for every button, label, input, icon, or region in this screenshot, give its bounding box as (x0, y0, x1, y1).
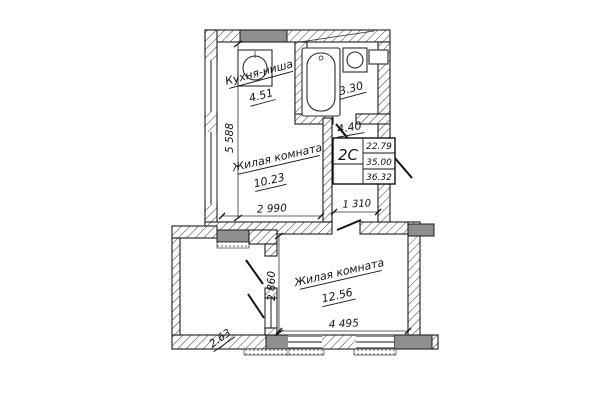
dim-label-2860: 2 860 (266, 271, 278, 301)
window-left-upper (204, 60, 218, 112)
svg-text:10.23: 10.23 (252, 171, 286, 191)
dim-label-1310: 1 310 (342, 198, 371, 210)
wall-bathroom-bottom-right (356, 114, 390, 124)
bathtub-icon (302, 48, 340, 116)
wall-top (205, 30, 390, 42)
vent-shaft-bottom-right (394, 335, 432, 349)
fixtures (238, 48, 388, 116)
svg-text:12.56: 12.56 (320, 286, 354, 306)
wall-balcony-top (172, 226, 217, 238)
stamp-apartment-type: 2С (338, 146, 359, 164)
dimension-4495: 4 495 (276, 317, 411, 334)
wall-lower-right (408, 222, 420, 347)
balcony-door-leaf (246, 260, 263, 284)
window-left-lower (204, 132, 218, 204)
floor-plan-canvas: 5 588 2 990 1 310 2 860 (0, 0, 600, 400)
window-sill (244, 349, 288, 355)
kitchen-area: 4.51 (247, 86, 276, 106)
dim-label-2990: 2 990 (257, 202, 288, 216)
washing-machine-icon (343, 48, 367, 72)
hallway-area: 4.40 (334, 119, 364, 138)
wall-step (249, 230, 277, 244)
window-sill (354, 349, 396, 355)
vent-shaft-bottom-left (266, 335, 290, 349)
apartment-stamp: 2С 22.79 35.00 36.32 (333, 138, 395, 184)
living1-area: 10.23 (252, 171, 286, 192)
dimension-1310: 1 310 (331, 198, 381, 215)
window-bottom-right (356, 335, 394, 349)
dimension-2990: 2 990 (219, 202, 324, 219)
wall-balcony-left (172, 238, 180, 335)
balcony-door-leaf-2 (248, 294, 264, 318)
window-balcony (265, 298, 277, 328)
vent-shaft-top (240, 30, 287, 42)
window-sill (286, 349, 324, 355)
living2-label: Жилая комната (292, 256, 386, 291)
svg-text:3.30: 3.30 (338, 79, 365, 98)
wall-balcony-door-stub (265, 244, 277, 256)
stamp-apartment-area: 35.00 (366, 158, 392, 168)
vent-sill (217, 242, 249, 248)
stamp-total-area: 36.32 (366, 173, 392, 183)
living1-label: Жилая комната (230, 141, 324, 176)
dim-label-5588: 5 588 (224, 123, 236, 153)
living2-area: 12.56 (319, 285, 355, 306)
lower-room-door-leaf (337, 220, 361, 230)
stamp-living-area: 22.79 (366, 142, 392, 152)
sink-icon (369, 50, 388, 64)
wall-balcony-bottom-stub (265, 328, 277, 335)
dim-label-4495: 4 495 (329, 317, 360, 331)
floor-plan-drawing: 5 588 2 990 1 310 2 860 (0, 0, 600, 400)
wall-partition-hall (323, 118, 332, 222)
svg-text:4.51: 4.51 (248, 86, 275, 105)
vent-shaft-balcony (217, 230, 249, 242)
vent-shaft-right (408, 224, 434, 236)
window-bottom-left (288, 335, 322, 349)
